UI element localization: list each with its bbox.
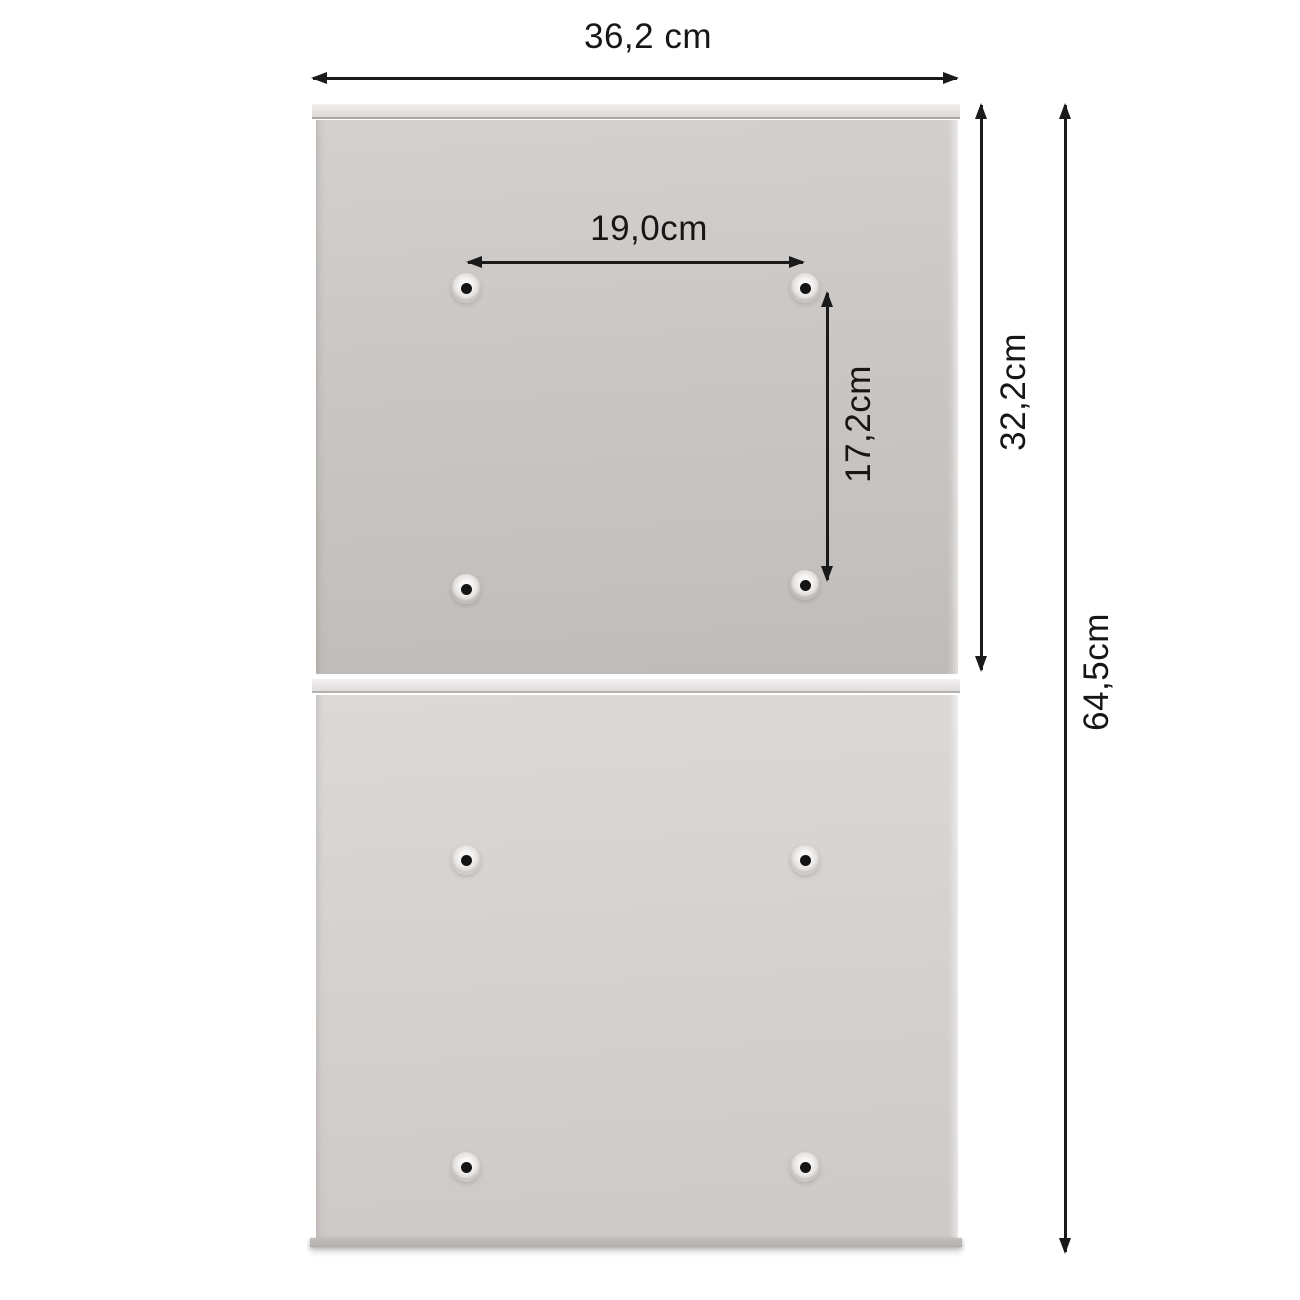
- screw-hole-top-panel-tl: [451, 273, 481, 303]
- figure-canvas: 36,2 cm 19,0cm 17,2cm 32,2cm 64,5cm: [0, 0, 1300, 1300]
- total-width-dim-label: 36,2 cm: [584, 18, 712, 57]
- screw-hole-bottom-panel-br: [790, 1152, 820, 1182]
- hole-spacing-horizontal-dim-arrow: [468, 261, 803, 264]
- bottom-panel-bottom-edge: [310, 1238, 962, 1247]
- hole-spacing-vertical-dim-label: 17,2cm: [840, 365, 879, 483]
- total-height-dim-arrow: [1064, 105, 1067, 1252]
- total-width-dim-arrow: [313, 77, 957, 80]
- total-height-dim-label: 64,5cm: [1078, 613, 1117, 731]
- bottom-panel-body: [316, 695, 958, 1238]
- screw-hole-top-panel-br: [790, 570, 820, 600]
- screw-hole-bottom-panel-tl: [451, 845, 481, 875]
- screw-hole-top-panel-tr: [790, 273, 820, 303]
- hole-spacing-horizontal-dim-label: 19,0cm: [590, 210, 708, 249]
- panel-height-dim-label: 32,2cm: [995, 333, 1034, 451]
- top-panel-lip: [312, 104, 960, 119]
- bottom-panel: [312, 679, 960, 1247]
- bottom-panel-lip: [312, 679, 960, 693]
- screw-hole-bottom-panel-bl: [451, 1152, 481, 1182]
- hole-spacing-vertical-dim-arrow: [826, 293, 829, 580]
- screw-hole-bottom-panel-tr: [790, 845, 820, 875]
- panel-height-dim-arrow: [980, 105, 983, 670]
- screw-hole-top-panel-bl: [451, 574, 481, 604]
